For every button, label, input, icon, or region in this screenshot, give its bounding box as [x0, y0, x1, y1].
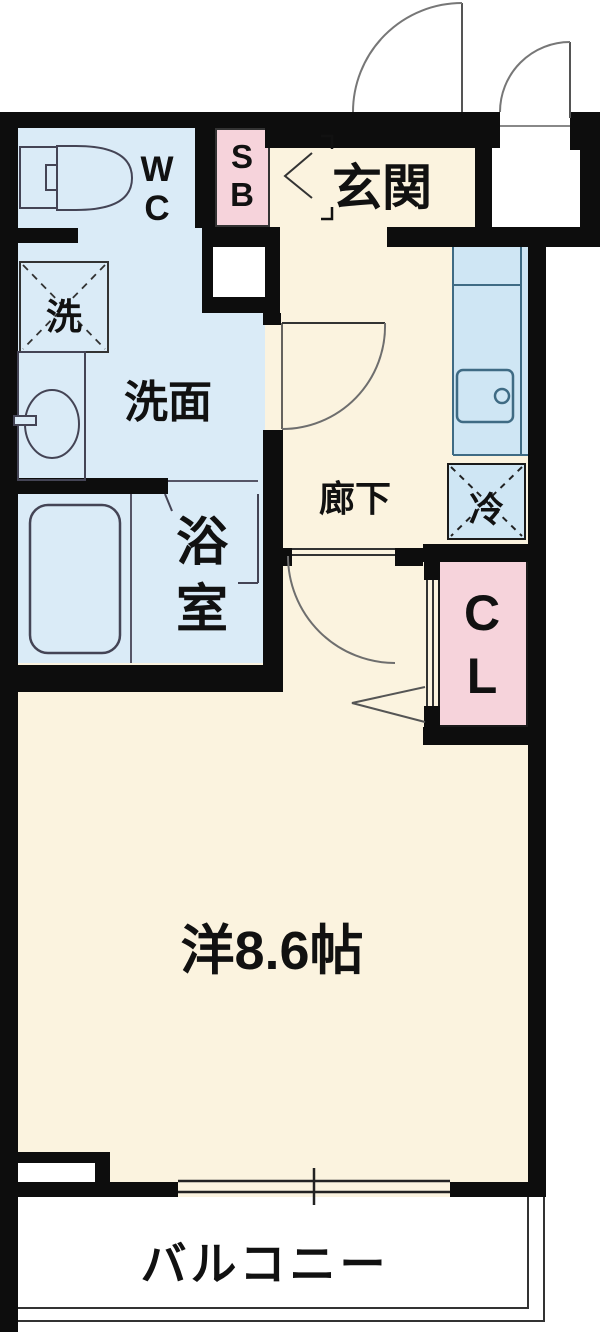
- label-rei: 冷: [447, 482, 526, 533]
- label-senmen: 洗面: [104, 366, 232, 430]
- entrance-door-arc: [353, 3, 462, 112]
- wall-top-right: [265, 112, 500, 148]
- kitchen-counter: [452, 247, 528, 455]
- wall-right-outer: [528, 245, 546, 1197]
- label-genkan: 玄関: [312, 148, 452, 220]
- wall-bottom-left: [0, 1182, 178, 1197]
- label-rouka: 廊下: [305, 470, 405, 522]
- wall-bottom-right: [450, 1182, 545, 1197]
- wall-alcove-left: [475, 125, 492, 227]
- label-yokushitsu: 浴室: [172, 510, 232, 644]
- floor-plan: 玄関 WC SB 洗 洗面 浴室 廊下 冷 CL 洋8.6帖 バルコニー: [0, 0, 600, 1333]
- left-wall-window: [18, 1163, 95, 1182]
- wall-door-stub-right: [395, 548, 423, 566]
- wall-bath-top: [0, 478, 168, 494]
- wall-cl-bottom: [423, 727, 545, 745]
- wall-top-left: [0, 112, 265, 128]
- label-balcony: バルコニー: [75, 1228, 455, 1294]
- wall-genkan-bottom: [387, 227, 600, 247]
- neighbor-door-arc: [500, 42, 570, 112]
- label-cl: CL: [454, 582, 510, 708]
- wall-wc-right: [195, 128, 215, 228]
- label-sb: SB: [217, 138, 267, 214]
- wall-door-stub-left: [280, 548, 292, 566]
- wall-notch-top: [18, 1152, 110, 1163]
- label-main-room: 洋8.6帖: [122, 906, 422, 985]
- opening-gap: [213, 247, 265, 297]
- entrance-alcove: [492, 112, 580, 227]
- cl-door-post-top: [424, 558, 440, 580]
- wall-cl-top: [423, 544, 545, 562]
- wall-wc-bottom-stub: [18, 228, 78, 243]
- wall-below-bath: [0, 665, 283, 692]
- cl-door-post-bottom: [424, 706, 440, 727]
- wall-notch-right: [95, 1163, 110, 1182]
- label-wc: WC: [134, 150, 180, 228]
- wall-left-outer: [0, 112, 18, 1332]
- wall-hall-upper-stub: [263, 313, 281, 325]
- label-washer: 洗: [38, 288, 90, 340]
